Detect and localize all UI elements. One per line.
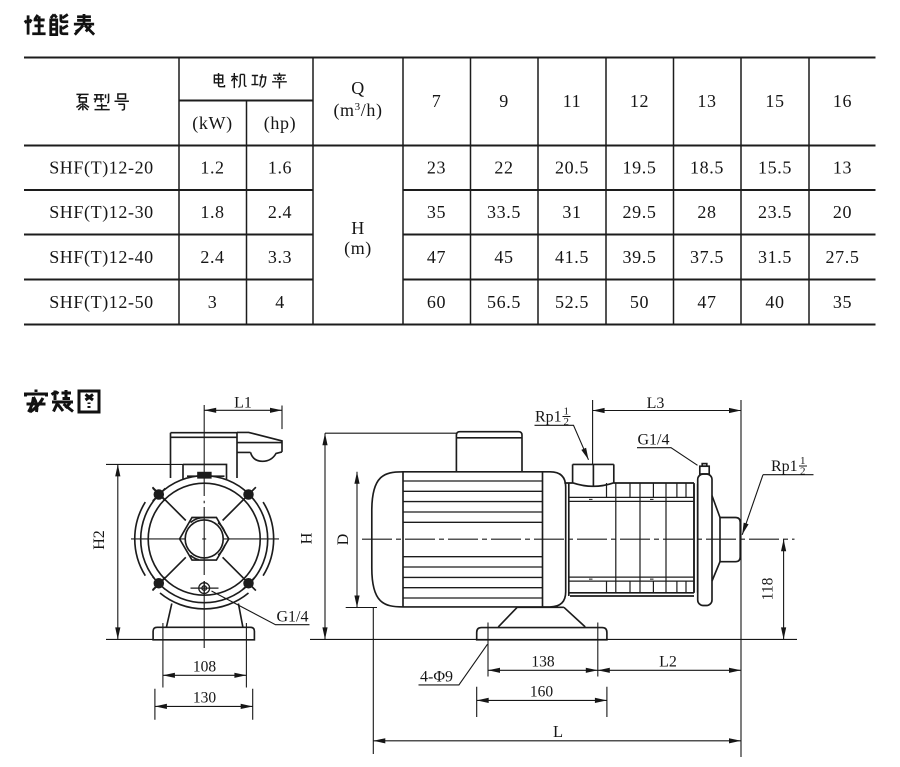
svg-text:G1/4: G1/4 <box>277 609 309 626</box>
svg-text:160: 160 <box>530 684 554 701</box>
svg-text:40: 40 <box>765 292 784 312</box>
svg-text:L: L <box>553 722 563 741</box>
svg-text:9: 9 <box>499 91 509 111</box>
svg-text:2.4: 2.4 <box>200 247 224 267</box>
svg-text:20.5: 20.5 <box>555 158 589 178</box>
svg-text:118: 118 <box>760 577 777 600</box>
svg-text:22: 22 <box>494 158 513 178</box>
svg-text:16: 16 <box>833 91 852 111</box>
svg-text:Rp1: Rp1 <box>535 409 562 426</box>
svg-text:23: 23 <box>427 158 446 178</box>
svg-text:11: 11 <box>563 91 582 111</box>
svg-text:15.5: 15.5 <box>758 158 792 178</box>
svg-text:2: 2 <box>800 466 806 478</box>
svg-text:33.5: 33.5 <box>487 202 521 222</box>
svg-text:(kW): (kW) <box>192 113 232 134</box>
svg-text:28: 28 <box>697 202 716 222</box>
svg-text:L2: L2 <box>659 654 677 671</box>
svg-text:35: 35 <box>427 202 446 222</box>
svg-text:H: H <box>351 218 365 238</box>
svg-text:3: 3 <box>208 292 218 312</box>
svg-text:G1/4: G1/4 <box>638 432 670 449</box>
svg-text:31: 31 <box>562 202 581 222</box>
svg-text:L1: L1 <box>234 395 252 412</box>
svg-text:47: 47 <box>697 292 716 312</box>
svg-text:31.5: 31.5 <box>758 247 792 267</box>
svg-text:H2: H2 <box>91 530 108 550</box>
svg-text:2.4: 2.4 <box>268 202 292 222</box>
svg-text:3.3: 3.3 <box>268 247 292 267</box>
svg-text:130: 130 <box>193 690 217 707</box>
svg-text:27.5: 27.5 <box>826 247 860 267</box>
svg-text:15: 15 <box>765 91 784 111</box>
svg-text:(hp): (hp) <box>264 113 296 134</box>
svg-text:35: 35 <box>833 292 852 312</box>
svg-text:Q: Q <box>351 78 365 98</box>
svg-text:SHF(T)12-20: SHF(T)12-20 <box>49 158 154 179</box>
svg-text:108: 108 <box>193 659 217 676</box>
svg-text:L3: L3 <box>647 395 665 412</box>
svg-text:H: H <box>299 532 316 544</box>
svg-text:60: 60 <box>427 292 446 312</box>
svg-text:4-Φ9: 4-Φ9 <box>420 669 453 686</box>
svg-text:(m3/h): (m3/h) <box>333 100 382 121</box>
svg-text:45: 45 <box>494 247 513 267</box>
svg-text:138: 138 <box>531 654 555 671</box>
svg-text:29.5: 29.5 <box>623 202 657 222</box>
svg-text:1.8: 1.8 <box>200 202 224 222</box>
svg-text:D: D <box>335 534 352 546</box>
svg-text:56.5: 56.5 <box>487 292 521 312</box>
svg-text:4: 4 <box>275 292 285 312</box>
svg-text:23.5: 23.5 <box>758 202 792 222</box>
svg-text:37.5: 37.5 <box>690 247 724 267</box>
svg-text:20: 20 <box>833 202 852 222</box>
svg-text:(m): (m) <box>344 238 372 259</box>
svg-text:13: 13 <box>697 91 716 111</box>
svg-text:SHF(T)12-30: SHF(T)12-30 <box>49 202 154 223</box>
svg-text:12: 12 <box>630 91 649 111</box>
svg-text:1.6: 1.6 <box>268 158 292 178</box>
svg-text:1.2: 1.2 <box>200 158 224 178</box>
svg-text:52.5: 52.5 <box>555 292 589 312</box>
svg-text:50: 50 <box>630 292 649 312</box>
svg-text:SHF(T)12-40: SHF(T)12-40 <box>49 247 154 268</box>
svg-text:7: 7 <box>432 91 442 111</box>
svg-text:2: 2 <box>564 416 570 428</box>
svg-text:39.5: 39.5 <box>623 247 657 267</box>
svg-text:41.5: 41.5 <box>555 247 589 267</box>
svg-text:SHF(T)12-50: SHF(T)12-50 <box>49 292 154 313</box>
svg-text:Rp1: Rp1 <box>771 458 798 475</box>
svg-text:13: 13 <box>833 158 852 178</box>
svg-text:19.5: 19.5 <box>623 158 657 178</box>
svg-text:47: 47 <box>427 247 446 267</box>
svg-text:18.5: 18.5 <box>690 158 724 178</box>
